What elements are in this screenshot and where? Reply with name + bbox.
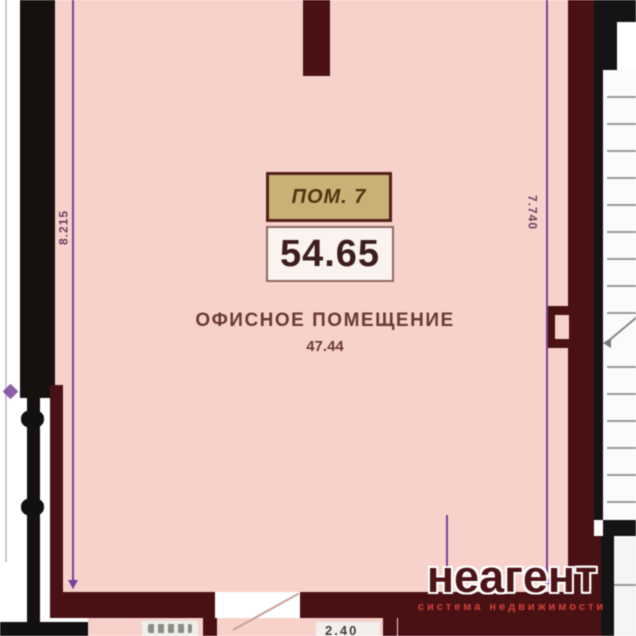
stair-step-line [607, 150, 636, 152]
stair-step-line [607, 366, 636, 368]
wall-top-right-vertical [594, 22, 617, 70]
stair-step-line [607, 204, 636, 206]
cutoff-dimension-box-right: 2.40 [316, 622, 380, 636]
wall-bottom-left-segment [50, 592, 215, 618]
wall-stub-below-right [383, 618, 397, 636]
stair-step-line [607, 177, 636, 179]
dimension-label-right: 7.740 [527, 183, 540, 243]
stair-step-line [607, 285, 636, 287]
wall-joint-mark [21, 410, 44, 428]
wall-left-lower [27, 398, 40, 636]
stair-step-line [607, 96, 636, 98]
stair-direction-arrow [603, 338, 611, 348]
room-tag-box: ПОМ. 7 [266, 172, 392, 222]
brand-tagline: система недвижимости [396, 601, 628, 613]
wall-top-stub [303, 0, 330, 76]
left-boundary-line [5, 0, 7, 562]
stair-step-line [607, 123, 636, 125]
stair-step-line [607, 501, 636, 503]
room-area-box: 54.65 [266, 226, 394, 282]
stair-step-line [607, 447, 636, 449]
stair-step-line [607, 420, 636, 422]
illegible-number-smudge [148, 624, 192, 633]
staircase [603, 70, 636, 520]
cutoff-dimension-value: 2.40 [325, 623, 358, 636]
stairwell-wall-line [594, 0, 603, 520]
stair-step-line [607, 258, 636, 260]
office-room-fill [55, 0, 585, 592]
room-area-label: 47.44 [140, 338, 510, 355]
room-tag-label: ПОМ. 7 [292, 186, 367, 209]
stair-step-line [607, 474, 636, 476]
brand-watermark: неагент [392, 554, 632, 599]
stair-step-line [607, 393, 636, 395]
room-area-value: 54.65 [280, 233, 380, 276]
dimension-label-left: 8.215 [57, 198, 70, 258]
stair-step-line [607, 231, 636, 233]
dimension-line-right [546, 0, 548, 586]
wall-stub-below-left [203, 618, 217, 636]
floor-plan: 2.40 8.215 7.740 ПОМ. 7 54.65 ОФИСНОЕ ПО… [0, 0, 636, 636]
stair-step-line [607, 312, 636, 314]
wall-bottom-left-corner [0, 622, 88, 636]
wall-niche-box [546, 306, 578, 348]
stair-landing-wall [603, 520, 636, 536]
cutoff-dimension-box-left [142, 621, 198, 636]
room-name-label: ОФИСНОЕ ПОМЕЩЕНИЕ [140, 310, 510, 332]
dimension-line-left [72, 0, 74, 588]
wall-top-right-horizontal [594, 0, 636, 22]
wall-left-inner [50, 385, 63, 592]
wall-joint-mark [21, 498, 44, 516]
wall-left-upper [20, 0, 55, 398]
dimension-arrow-left [68, 580, 78, 589]
